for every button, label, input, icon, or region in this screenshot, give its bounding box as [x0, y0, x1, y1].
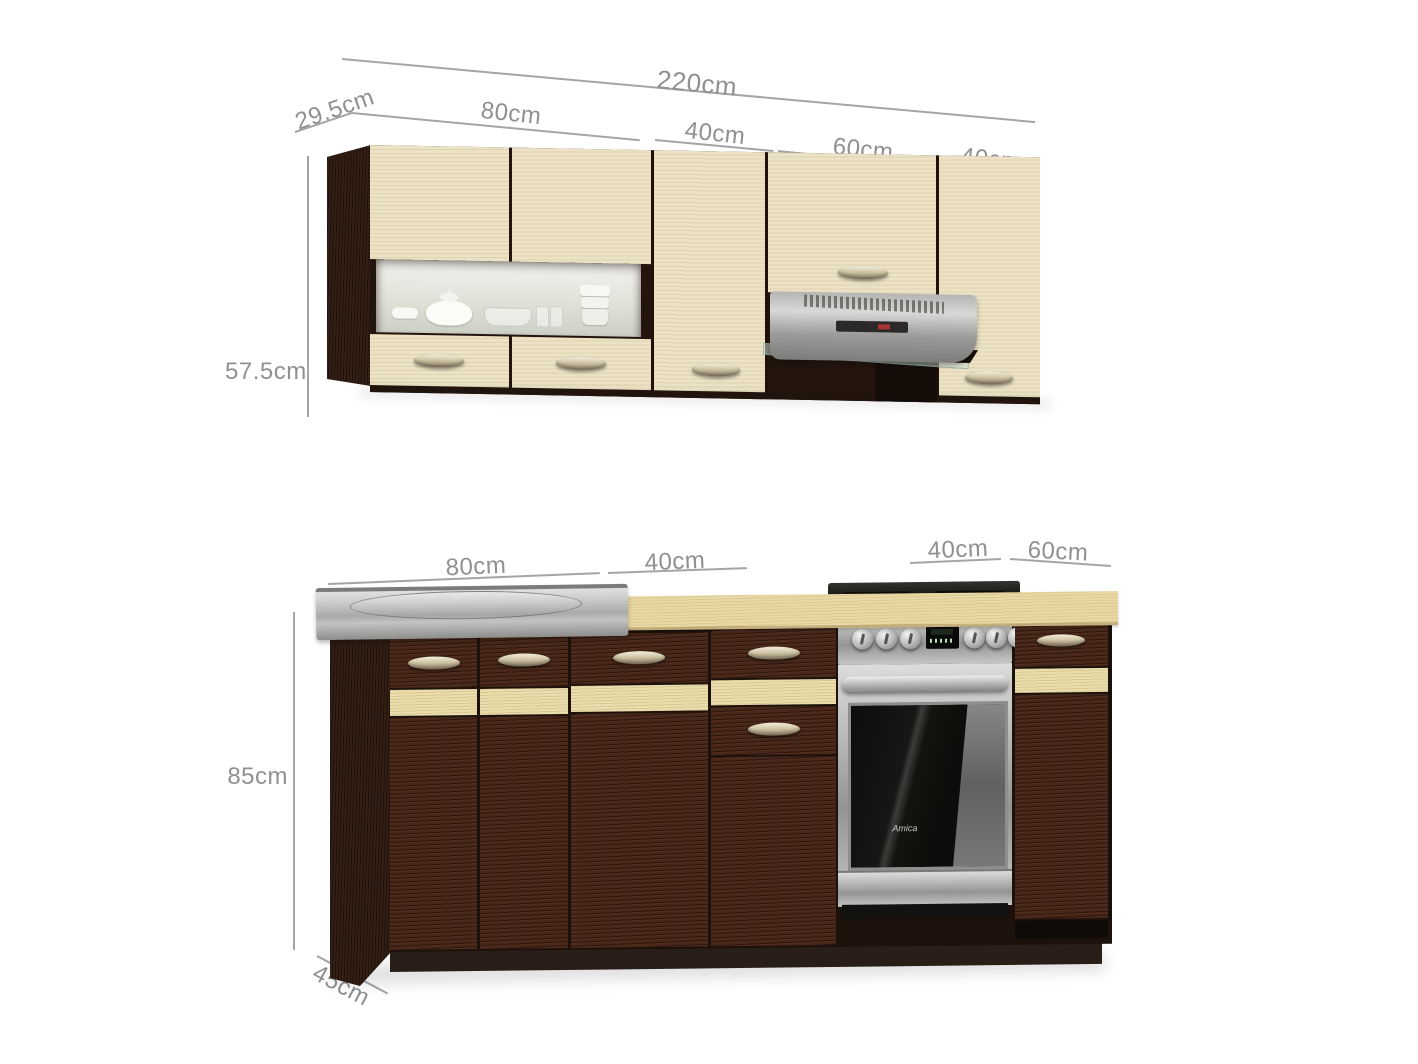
- base-cabinet-run: Amica: [390, 624, 1112, 952]
- drawer-handle: [408, 656, 460, 670]
- wall-door-bottom-left: [370, 334, 509, 388]
- wall-door-top-right: [512, 148, 651, 265]
- knob: [852, 629, 873, 650]
- base-cabinet-side-panel: [330, 598, 391, 988]
- knob: [876, 628, 897, 649]
- cooker: Amica: [828, 581, 1020, 979]
- door-handle: [556, 356, 606, 370]
- glass-bowl: [484, 307, 532, 327]
- wall-door-bottom-right: [512, 337, 651, 391]
- sink-drawer-front-left: [390, 637, 477, 688]
- knob: [900, 628, 921, 649]
- wall-cabinet-run: [370, 145, 1040, 404]
- hood-vent-grille: [804, 295, 944, 314]
- drawer-handle: [748, 722, 800, 736]
- drawer-handle: [498, 653, 550, 667]
- base-drawer-2: [711, 706, 836, 755]
- wall-door-40: [654, 150, 765, 392]
- sink-door-right: [480, 716, 568, 949]
- glass: [550, 306, 563, 327]
- oven-window-reflection: [953, 704, 1005, 867]
- range-hood: [770, 291, 977, 363]
- wall-cabinet-side-panel: [327, 143, 371, 393]
- sink-drawer-front-right: [480, 636, 568, 687]
- door-handle: [692, 363, 740, 377]
- base-60-door: [1015, 694, 1108, 919]
- accent-stripe: [571, 684, 708, 712]
- dim-label-base-seg3: 40cm: [922, 534, 993, 565]
- wall-cabinet-hood-door: [768, 152, 936, 295]
- dim-label-total-width: 220cm: [646, 63, 749, 104]
- dishes: [376, 259, 641, 337]
- cabinet-seam: [765, 152, 768, 392]
- dim-label-base-seg1: 80cm: [440, 551, 511, 582]
- dim-label-base-seg2: 40cm: [639, 546, 710, 577]
- display-digits: [930, 639, 955, 643]
- door-handle: [838, 266, 888, 280]
- dim-label-upper-height: 57.5cm: [225, 358, 303, 386]
- cup-stack: [581, 297, 609, 309]
- base-40-door: [571, 712, 708, 948]
- cup-stack: [582, 309, 608, 325]
- dim-line-upper-height: [307, 156, 309, 417]
- drawer-handle: [1037, 634, 1085, 647]
- oven-display: [926, 624, 959, 649]
- dim-label-base-seg4: 60cm: [1022, 536, 1093, 568]
- base-60-side-edge: [1108, 618, 1112, 920]
- base-drawer-1: [711, 629, 836, 678]
- accent-stripe: [390, 689, 477, 716]
- hood-control-panel: [836, 321, 908, 333]
- kitchen-set-dimension-diagram: 220cm 29.5cm 80cm 40cm 60cm 40cm 57.5cm: [0, 0, 1418, 1064]
- hood-indicator: [878, 324, 890, 329]
- base-40-drawer: [571, 632, 708, 684]
- cup-stack: [580, 285, 610, 297]
- base-drawer-door: [711, 756, 836, 946]
- oven-window: Amica: [848, 701, 1008, 871]
- beech-countertop: [560, 591, 1118, 631]
- stainless-sink-top: [316, 584, 629, 640]
- sink-bowl: [350, 589, 582, 620]
- cooker-brand-logo: Amica: [851, 823, 959, 834]
- oven: Amica: [838, 663, 1012, 905]
- plate: [392, 307, 418, 318]
- dim-label-upper-depth: 29.5cm: [291, 83, 380, 137]
- warming-drawer: [838, 869, 1012, 907]
- knob: [964, 627, 985, 648]
- door-handle: [965, 371, 1013, 385]
- accent-stripe: [1015, 668, 1108, 693]
- oven-handle: [842, 675, 1008, 692]
- tureen: [426, 300, 472, 326]
- base-60-plinth: [1015, 920, 1108, 939]
- wall-cabinet-glass-display: [376, 259, 641, 337]
- wall-door-top-left: [370, 145, 509, 262]
- drawer-handle: [613, 651, 665, 665]
- accent-stripe: [480, 688, 568, 715]
- door-handle: [414, 354, 464, 368]
- accent-stripe: [711, 679, 836, 705]
- lid-knob: [447, 288, 452, 293]
- drawer-handle: [748, 646, 800, 660]
- tureen-lid: [440, 292, 458, 301]
- glass: [536, 306, 549, 327]
- dim-label-upper-seg2: 40cm: [679, 116, 752, 151]
- cooker-base: [842, 903, 1008, 919]
- knob: [986, 627, 1007, 648]
- dim-line-base-height: [293, 612, 295, 950]
- cabinet-seam: [651, 150, 654, 390]
- dim-label-base-height: 85cm: [210, 763, 288, 791]
- sink-door-left: [390, 717, 477, 950]
- display-screen: [931, 629, 953, 635]
